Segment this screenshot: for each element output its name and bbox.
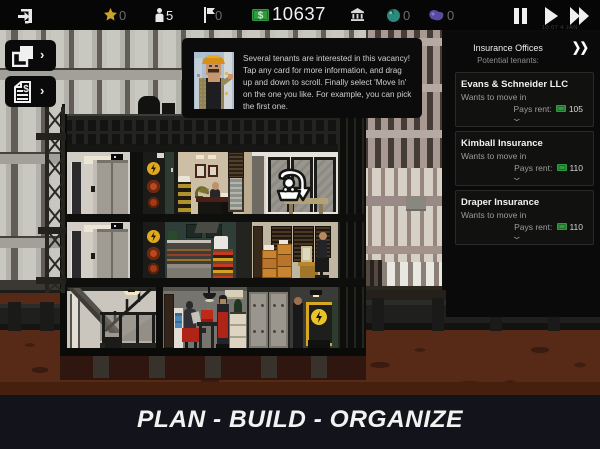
- svg-text:$: $: [23, 84, 29, 95]
- svg-text:$: $: [258, 11, 264, 22]
